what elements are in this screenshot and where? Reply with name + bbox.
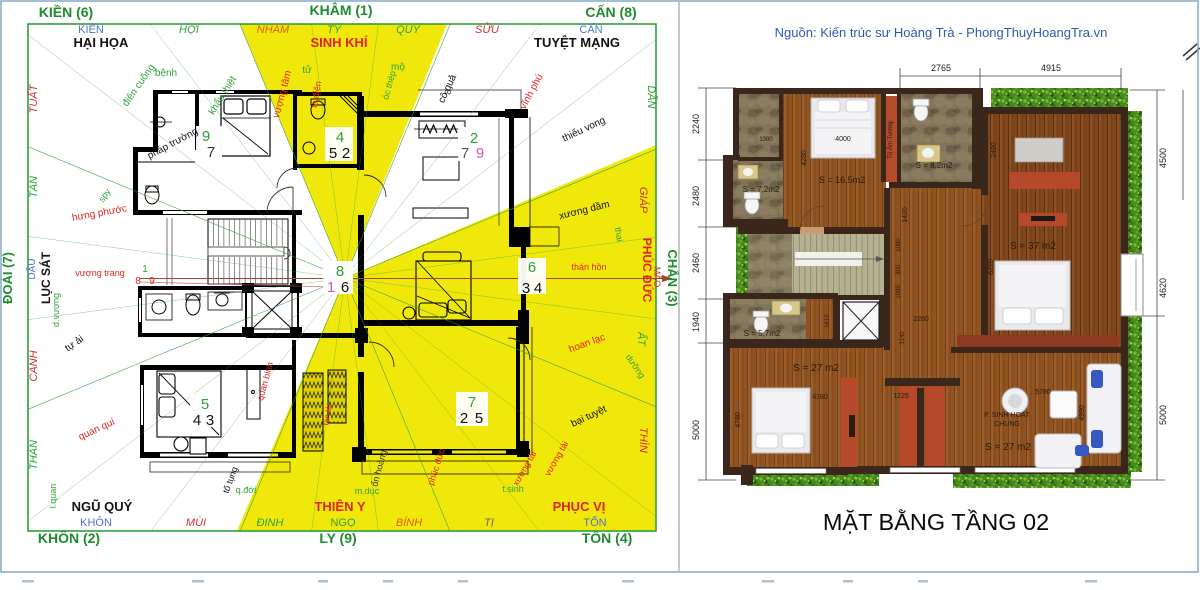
svg-text:6220: 6220 — [988, 259, 995, 275]
svg-text:9: 9 — [202, 128, 210, 145]
svg-text:4780: 4780 — [812, 394, 828, 401]
svg-text:THÂN: THÂN — [27, 440, 40, 470]
svg-text:7: 7 — [207, 144, 215, 161]
svg-text:KHÔN (2): KHÔN (2) — [38, 529, 100, 546]
svg-text:HẠI HỌA: HẠI HỌA — [74, 35, 130, 50]
svg-text:4: 4 — [534, 280, 542, 297]
svg-text:NGỌ: NGỌ — [330, 517, 356, 529]
svg-text:4780: 4780 — [735, 412, 742, 428]
svg-text:8: 8 — [135, 276, 141, 287]
svg-text:5780: 5780 — [1035, 389, 1051, 396]
svg-text:S = 27 m2: S = 27 m2 — [985, 442, 1031, 453]
svg-text:CHUNG: CHUNG — [994, 421, 1020, 428]
svg-text:7: 7 — [461, 145, 469, 162]
svg-text:tử: tử — [302, 64, 312, 76]
svg-text:ĐOÀI (7): ĐOÀI (7) — [0, 252, 15, 304]
svg-text:MẶT BẰNG TẦNG 02: MẶT BẰNG TẦNG 02 — [823, 508, 1049, 535]
svg-text:3: 3 — [206, 412, 214, 429]
svg-text:THIÊN Y: THIÊN Y — [314, 499, 365, 514]
svg-text:4: 4 — [193, 412, 201, 429]
svg-text:1420: 1420 — [902, 207, 909, 223]
svg-text:CANH: CANH — [28, 350, 40, 381]
svg-text:S = 8,2m2: S = 8,2m2 — [916, 161, 953, 170]
svg-text:SỬU: SỬU — [475, 23, 499, 36]
svg-text:1225: 1225 — [893, 393, 909, 400]
svg-text:P. SINH HOẠT: P. SINH HOẠT — [984, 412, 1030, 419]
svg-text:6: 6 — [528, 259, 536, 276]
svg-text:TỐN: TỐN — [583, 515, 606, 529]
svg-text:5000: 5000 — [691, 420, 701, 440]
svg-text:m.dục: m.dục — [355, 486, 380, 496]
svg-text:t.sinh: t.sinh — [502, 484, 524, 494]
svg-text:DẦN: DẦN — [645, 85, 658, 108]
svg-text:Tủ Âm Tường: Tủ Âm Tường — [887, 121, 894, 159]
svg-text:1080: 1080 — [896, 238, 902, 252]
svg-text:KHÂM (1): KHÂM (1) — [310, 1, 373, 18]
svg-text:6: 6 — [341, 279, 349, 296]
svg-text:1610: 1610 — [825, 314, 831, 328]
svg-text:2460: 2460 — [691, 253, 701, 273]
svg-text:KIỀN (6): KIỀN (6) — [39, 4, 93, 20]
svg-text:1380: 1380 — [759, 137, 773, 143]
svg-text:S = 7,2m2: S = 7,2m2 — [743, 185, 780, 194]
svg-text:2240: 2240 — [691, 114, 701, 134]
svg-text:9: 9 — [149, 276, 155, 287]
svg-text:9: 9 — [476, 145, 484, 162]
svg-text:q.đới: q.đới — [236, 485, 256, 495]
svg-text:S = 37 m2: S = 37 m2 — [1010, 241, 1056, 252]
svg-text:KHÔN: KHÔN — [80, 516, 112, 529]
svg-text:THÌN: THÌN — [637, 427, 650, 453]
svg-text:SINH KHÍ: SINH KHÍ — [310, 35, 367, 50]
svg-text:bệnh: bệnh — [155, 68, 177, 79]
svg-text:2490: 2490 — [991, 142, 998, 158]
svg-text:l.quan: l.quan — [48, 484, 58, 509]
svg-text:MÃO: MÃO — [652, 267, 662, 288]
svg-text:3140: 3140 — [900, 331, 906, 345]
svg-text:thán hồn: thán hồn — [571, 262, 606, 272]
svg-text:LY (9): LY (9) — [319, 530, 356, 546]
svg-text:1940: 1940 — [691, 312, 701, 332]
svg-text:5: 5 — [329, 145, 337, 162]
svg-text:1: 1 — [142, 264, 148, 275]
svg-text:CHẤN (3): CHẤN (3) — [665, 249, 680, 306]
svg-text:1: 1 — [327, 279, 335, 296]
svg-text:TỐN (4): TỐN (4) — [582, 529, 633, 546]
svg-text:S = 16,5m2: S = 16,5m2 — [819, 175, 865, 185]
svg-text:NGŨ QUÝ: NGŨ QUÝ — [72, 499, 133, 514]
svg-text:d.vượng: d.vượng — [51, 293, 61, 327]
svg-text:TUẤT: TUẤT — [27, 83, 40, 113]
svg-text:ĐINH: ĐINH — [257, 517, 284, 529]
svg-text:4620: 4620 — [1158, 278, 1168, 298]
svg-text:S = 5,7m2: S = 5,7m2 — [744, 329, 781, 338]
svg-text:2480: 2480 — [691, 186, 701, 206]
svg-text:ẤT: ẤT — [635, 331, 648, 347]
svg-text:QUÝ: QUÝ — [396, 23, 421, 36]
svg-text:4: 4 — [336, 129, 344, 146]
svg-text:7: 7 — [468, 394, 476, 411]
svg-text:2765: 2765 — [931, 63, 951, 73]
svg-text:5000: 5000 — [1158, 405, 1168, 425]
svg-text:8: 8 — [336, 263, 344, 280]
svg-text:TÂN: TÂN — [27, 176, 40, 198]
svg-text:NHÂM: NHÂM — [257, 23, 290, 36]
svg-text:5: 5 — [475, 410, 483, 427]
svg-text:Nguồn: Kiến trúc sư Hoàng Trà: Nguồn: Kiến trúc sư Hoàng Trà - PhongThu… — [775, 25, 1108, 40]
svg-text:4280: 4280 — [801, 150, 808, 166]
svg-text:4500: 4500 — [1158, 148, 1168, 168]
svg-text:2: 2 — [342, 145, 350, 162]
svg-text:4990: 4990 — [1079, 405, 1086, 421]
svg-text:2280: 2280 — [913, 316, 929, 323]
svg-text:1080: 1080 — [896, 285, 902, 299]
svg-text:CẤN (8): CẤN (8) — [585, 4, 636, 20]
svg-text:300: 300 — [896, 264, 902, 275]
svg-text:TUYỆT MẠNG: TUYỆT MẠNG — [534, 35, 620, 50]
svg-text:MÙI: MÙI — [186, 516, 206, 529]
svg-text:4915: 4915 — [1041, 63, 1061, 73]
svg-text:GIÁP: GIÁP — [637, 187, 650, 214]
svg-text:5: 5 — [201, 396, 209, 413]
svg-text:HỢI: HỢI — [179, 24, 199, 36]
svg-text:3: 3 — [522, 280, 530, 297]
svg-text:BÍNH: BÍNH — [396, 516, 422, 529]
svg-text:vượng trang: vượng trang — [75, 268, 124, 278]
svg-text:PHỤC VỊ: PHỤC VỊ — [553, 499, 606, 514]
svg-text:2: 2 — [460, 410, 468, 427]
svg-text:4000: 4000 — [835, 136, 851, 143]
svg-text:S = 27 m2: S = 27 m2 — [793, 363, 839, 374]
svg-text:TỊ: TỊ — [484, 517, 494, 529]
svg-text:DẬU: DẬU — [25, 258, 38, 279]
